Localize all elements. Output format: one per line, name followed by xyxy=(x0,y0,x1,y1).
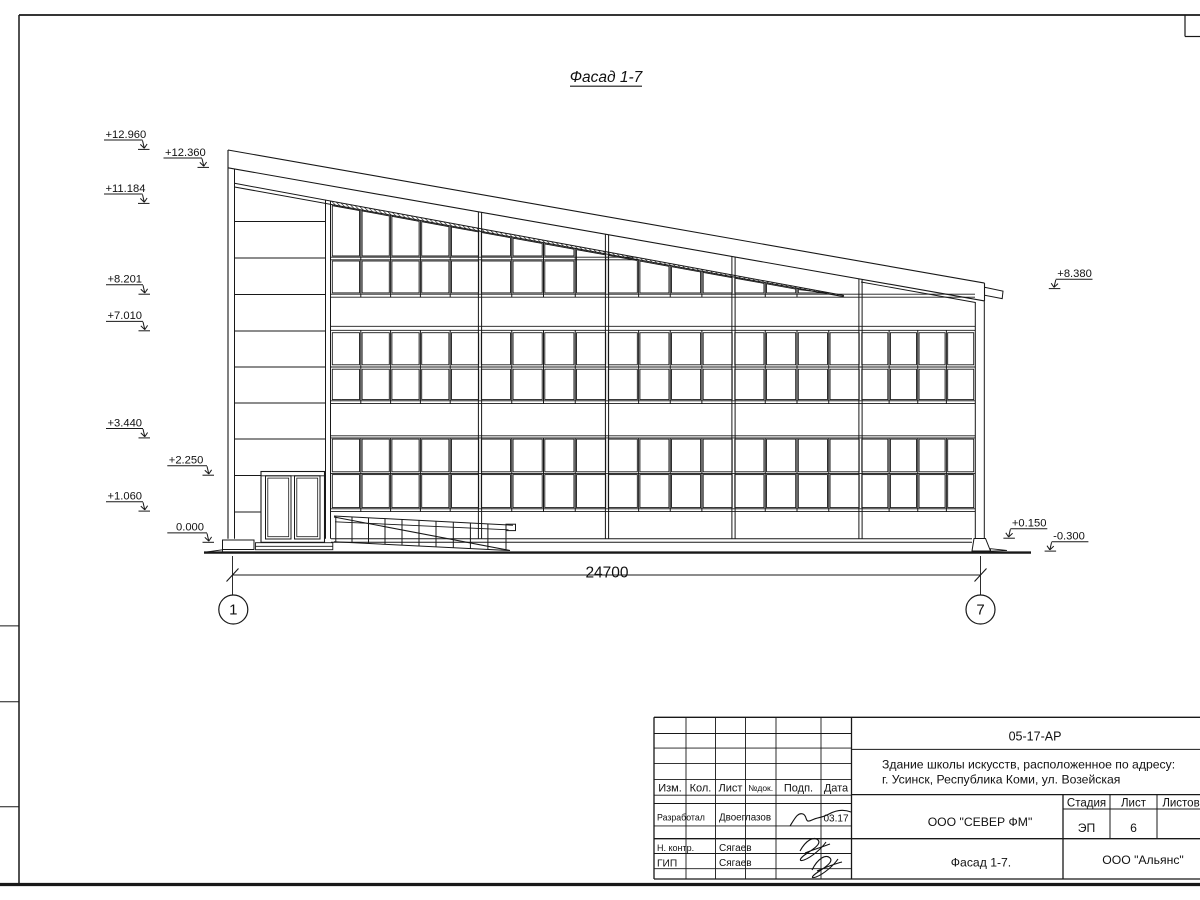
svg-text:Фасад 1-7: Фасад 1-7 xyxy=(570,69,644,86)
svg-text:+2.250: +2.250 xyxy=(169,455,204,467)
svg-text:Лист: Лист xyxy=(1121,798,1147,810)
svg-text:№док.: №док. xyxy=(748,783,773,793)
svg-text:-0.300: -0.300 xyxy=(1053,531,1085,543)
svg-text:Двоеглазов: Двоеглазов xyxy=(719,813,771,824)
svg-text:+8.380: +8.380 xyxy=(1057,268,1092,280)
svg-text:Подп.: Подп. xyxy=(784,783,813,795)
svg-text:Изм.: Изм. xyxy=(658,783,682,795)
svg-text:24700: 24700 xyxy=(585,565,628,582)
svg-text:+8.201: +8.201 xyxy=(108,274,143,286)
svg-text:+3.440: +3.440 xyxy=(108,417,143,429)
svg-text:ЭП: ЭП xyxy=(1078,821,1096,835)
svg-text:ГИП: ГИП xyxy=(657,859,677,870)
svg-text:Сягаев: Сягаев xyxy=(719,858,752,869)
svg-text:Фасад 1-7.: Фасад 1-7. xyxy=(951,856,1011,870)
svg-text:6: 6 xyxy=(1130,821,1137,835)
svg-text:7: 7 xyxy=(976,602,984,619)
svg-text:+12.960: +12.960 xyxy=(106,129,147,141)
svg-text:ООО "Альянс": ООО "Альянс" xyxy=(1102,853,1184,867)
svg-text:Здание школы искусств, располо: Здание школы искусств, расположенное по … xyxy=(882,758,1175,772)
svg-text:г. Усинск, Республика Коми, ул: г. Усинск, Республика Коми, ул. Возейска… xyxy=(882,773,1120,787)
svg-text:Сягаев: Сягаев xyxy=(719,843,752,854)
svg-text:+0.150: +0.150 xyxy=(1012,518,1047,530)
svg-text:Стадия: Стадия xyxy=(1067,798,1106,810)
svg-text:Дата: Дата xyxy=(824,783,849,795)
svg-text:Лист: Лист xyxy=(719,783,743,795)
svg-text:Н. контр.: Н. контр. xyxy=(657,843,694,853)
svg-text:05-17-АР: 05-17-АР xyxy=(1009,730,1062,744)
svg-text:1: 1 xyxy=(229,602,237,619)
svg-text:+7.010: +7.010 xyxy=(108,310,143,322)
svg-text:Листов: Листов xyxy=(1162,798,1199,810)
svg-text:Кол.: Кол. xyxy=(690,783,712,795)
svg-text:+12.360: +12.360 xyxy=(165,147,206,159)
svg-text:ООО "СЕВЕР ФМ": ООО "СЕВЕР ФМ" xyxy=(928,815,1033,829)
svg-text:+1.060: +1.060 xyxy=(108,491,143,503)
svg-text:+11.184: +11.184 xyxy=(106,183,146,195)
svg-text:Разработал: Разработал xyxy=(657,813,705,823)
svg-text:0.000: 0.000 xyxy=(176,522,204,534)
